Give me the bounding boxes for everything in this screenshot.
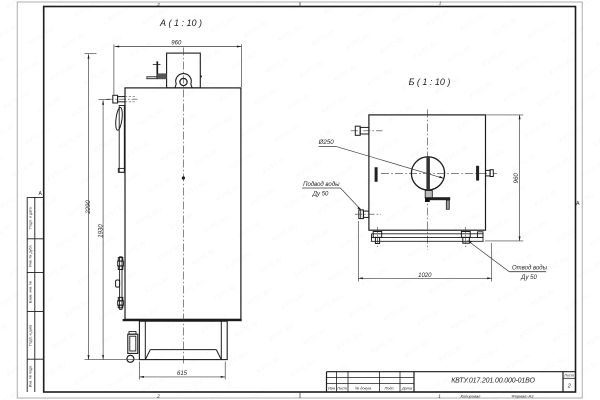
svg-text:Лист: Лист xyxy=(563,373,574,377)
svg-text:960: 960 xyxy=(171,40,182,46)
svg-text:Ду 50: Ду 50 xyxy=(312,191,329,197)
svg-text:Инв. № подл.: Инв. № подл. xyxy=(29,365,33,387)
svg-text:1930: 1930 xyxy=(98,224,104,238)
svg-text:960: 960 xyxy=(513,173,520,184)
svg-text:КВТУ.017.201.00.000-01ВО: КВТУ.017.201.00.000-01ВО xyxy=(451,378,535,385)
svg-text:1020: 1020 xyxy=(418,273,432,279)
svg-text:Подп.: Подп. xyxy=(384,386,394,390)
svg-text:2: 2 xyxy=(156,394,160,399)
svg-text:Инв. № дубл.: Инв. № дубл. xyxy=(29,245,33,267)
svg-text:Б ( 1 : 10 ): Б ( 1 : 10 ) xyxy=(409,77,451,87)
svg-text:Ду 50: Ду 50 xyxy=(520,275,537,281)
svg-text:Взам. инв. №: Взам. инв. № xyxy=(29,281,33,303)
svg-text:1: 1 xyxy=(439,1,441,6)
svg-text:1: 1 xyxy=(438,394,441,399)
svg-text:№ докум.: № докум. xyxy=(355,386,372,390)
svg-text:2: 2 xyxy=(567,383,571,389)
svg-text:2290: 2290 xyxy=(86,200,92,215)
svg-text:Подвод воды: Подвод воды xyxy=(303,182,340,188)
svg-text:Копировал: Копировал xyxy=(461,393,482,398)
svg-text:Дата: Дата xyxy=(401,386,412,390)
svg-text:А ( 1 : 10 ): А ( 1 : 10 ) xyxy=(159,18,202,28)
svg-text:Подп. и дата: Подп. и дата xyxy=(29,325,33,346)
svg-text:615: 615 xyxy=(177,371,188,377)
svg-text:Формат А3: Формат А3 xyxy=(512,393,535,398)
svg-text:Ø250: Ø250 xyxy=(318,139,335,146)
svg-text:2: 2 xyxy=(156,2,160,7)
svg-text:Лист: Лист xyxy=(336,386,347,390)
svg-text:Отвод воды: Отвод воды xyxy=(512,266,548,272)
svg-text:Изм: Изм xyxy=(328,386,335,390)
svg-text:Подп. и дата: Подп. и дата xyxy=(29,207,33,228)
